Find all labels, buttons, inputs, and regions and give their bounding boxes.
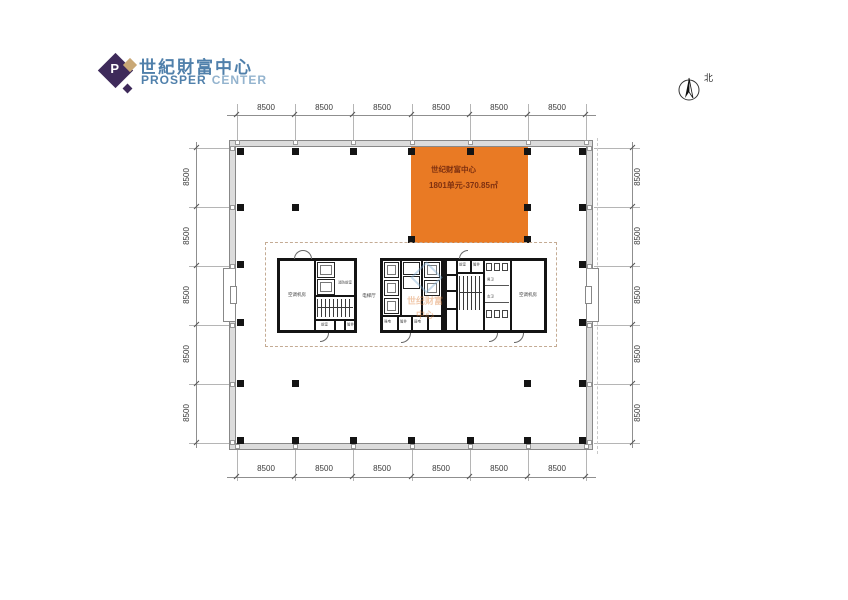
room-label-ac-left: 空调机房	[284, 293, 310, 298]
dimension-label: 8500	[470, 464, 528, 474]
room-label-lobby: 前室	[459, 263, 466, 267]
fire-elevator-shaft	[317, 262, 335, 278]
unit-project-name: 世纪财富中心	[431, 164, 476, 175]
passenger-elevator-shaft	[384, 298, 399, 314]
wall-recess-right-step	[585, 286, 592, 304]
logo-en-center: CENTER	[212, 73, 267, 87]
north-label: 北	[704, 71, 713, 84]
dimension-label: 8500	[528, 103, 586, 113]
compass-icon	[676, 76, 702, 102]
dimension-label: 8500	[182, 148, 192, 206]
logo-diamond-small-icon	[123, 84, 133, 94]
dimension-label: 8500	[353, 103, 411, 113]
room-label-fire-lobby: 消防前室	[338, 281, 352, 285]
room-label-shaft: 管井	[473, 263, 480, 267]
room-label-female-wc: 女卫	[487, 295, 494, 299]
dimension-label: 8500	[182, 325, 192, 383]
unit-1801-highlight[interactable]: 世纪财富中心 1801单元-370.85㎡	[411, 147, 528, 243]
wall-recess-left-step	[230, 286, 237, 304]
dimension-label: 8500	[633, 266, 643, 324]
dimension-label: 8500	[295, 103, 353, 113]
room-label-elevator-hall: 电梯厅	[362, 294, 376, 299]
dimension-label: 8500	[353, 464, 411, 474]
room-label-shaft: 管井	[347, 323, 354, 327]
watermark-logo: 世纪财富 中心	[404, 262, 448, 332]
dimension-label: 8500	[412, 103, 470, 113]
dimension-label: 8500	[295, 464, 353, 474]
watermark-diamond-icon	[410, 261, 443, 294]
unit-area-label: 1801单元-370.85㎡	[429, 180, 498, 191]
room-label-lobby: 前室	[321, 323, 328, 327]
dimension-label: 8500	[237, 103, 295, 113]
dimension-label: 8500	[182, 207, 192, 265]
dimension-label: 8500	[237, 464, 295, 474]
watermark-text-2: 中心	[416, 308, 434, 321]
dimension-label: 8500	[182, 384, 192, 442]
room-label-ac-right: 空调机房	[516, 293, 540, 298]
floor-plan-page: P 世紀財富中心 PROSPERCENTER 北 8500 8500 850	[0, 0, 848, 600]
dimension-label: 8500	[633, 207, 643, 265]
room-label-strong-power: 强电	[384, 320, 391, 324]
dimension-line	[196, 142, 197, 448]
dimension-label: 8500	[633, 325, 643, 383]
passenger-elevator-shaft	[384, 280, 399, 296]
dimension-label: 8500	[470, 103, 528, 113]
logo-title-en: PROSPERCENTER	[141, 73, 267, 87]
dimension-label: 8500	[412, 464, 470, 474]
passenger-elevator-shaft	[384, 262, 399, 278]
dimension-label: 8500	[182, 266, 192, 324]
room-label-male-wc: 男卫	[487, 278, 494, 282]
logo-en-prosper: PROSPER	[141, 73, 207, 87]
fire-elevator-shaft	[317, 279, 335, 295]
dimension-label: 8500	[528, 464, 586, 474]
stair-right	[459, 276, 482, 310]
stair-left	[317, 299, 353, 317]
dimension-label: 8500	[633, 148, 643, 206]
watermark-text-1: 世纪财富	[407, 294, 443, 307]
dimension-label: 8500	[633, 384, 643, 442]
